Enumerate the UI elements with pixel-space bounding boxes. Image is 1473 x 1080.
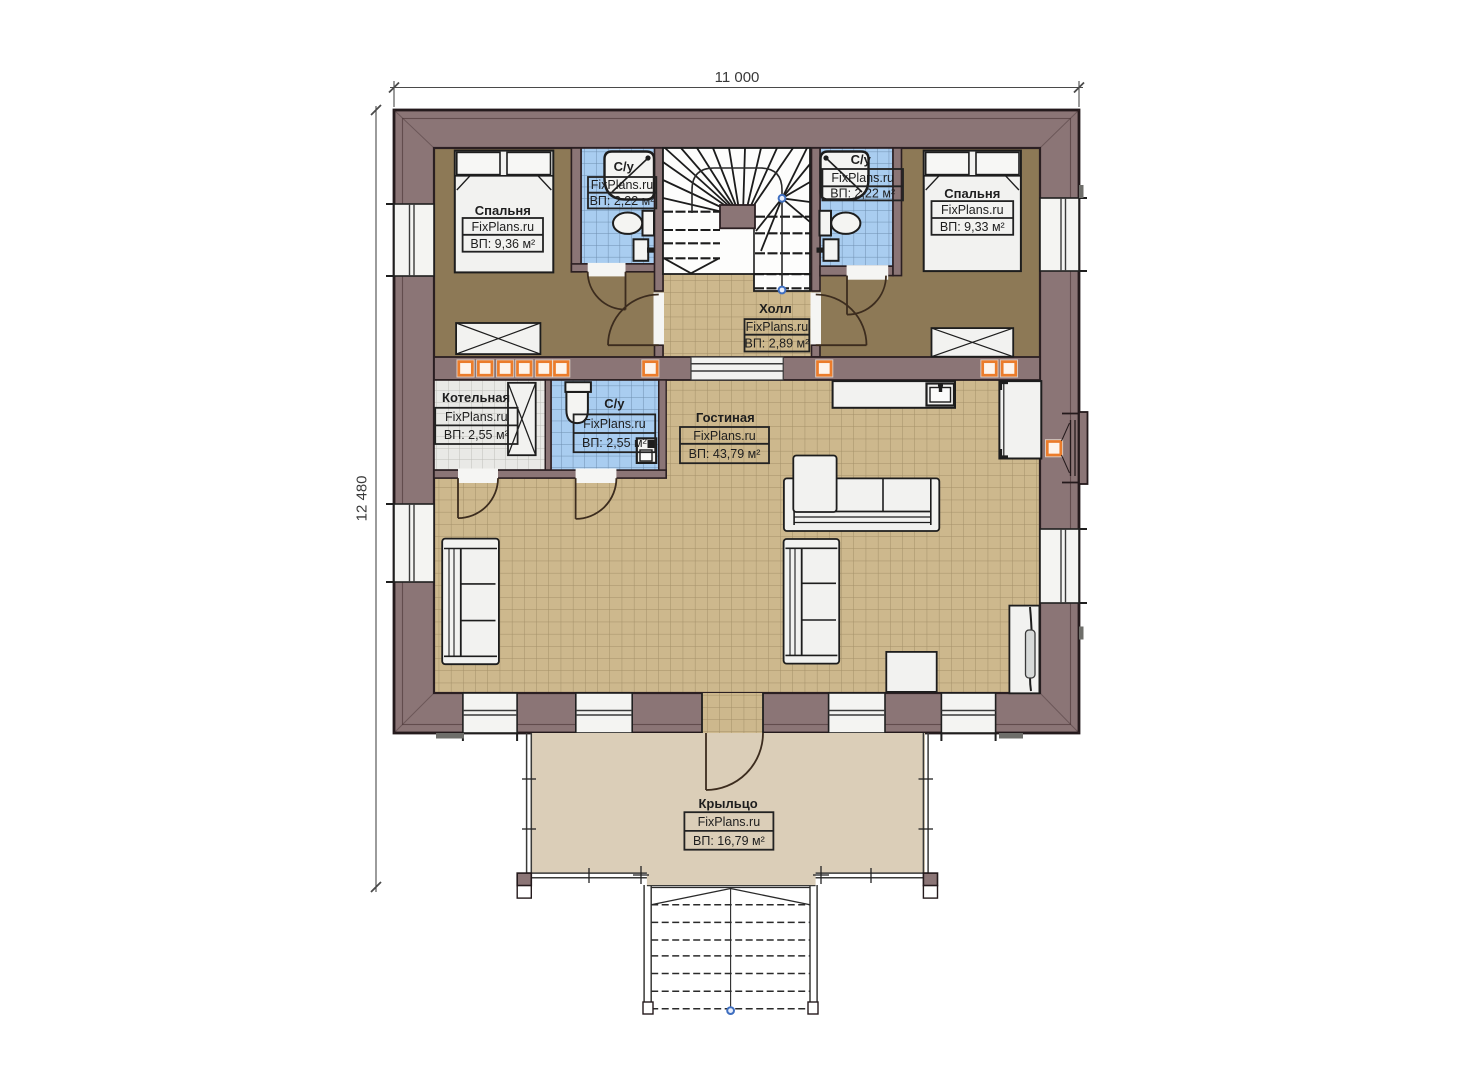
svg-text:ВП: 2,89 м²: ВП: 2,89 м² (744, 337, 809, 351)
svg-text:FixPlans.ru: FixPlans.ru (941, 203, 1004, 217)
svg-text:11 000: 11 000 (715, 69, 760, 86)
svg-text:Котельная: Котельная (442, 390, 510, 405)
svg-text:ВП: 2,22 м²: ВП: 2,22 м² (830, 187, 895, 201)
svg-text:FixPlans.ru: FixPlans.ru (698, 815, 761, 829)
svg-text:Холл: Холл (759, 301, 792, 316)
svg-text:FixPlans.ru: FixPlans.ru (591, 178, 654, 192)
svg-text:Спальня: Спальня (475, 203, 531, 218)
svg-text:FixPlans.ru: FixPlans.ru (693, 429, 756, 443)
svg-text:ВП: 2,55 м²: ВП: 2,55 м² (582, 436, 647, 450)
svg-text:FixPlans.ru: FixPlans.ru (472, 220, 535, 234)
svg-text:Спальня: Спальня (944, 186, 1000, 201)
svg-text:ВП: 9,36 м²: ВП: 9,36 м² (470, 237, 535, 251)
svg-text:ВП: 2,55 м²: ВП: 2,55 м² (444, 428, 509, 442)
svg-text:Крыльцо: Крыльцо (699, 796, 758, 811)
svg-text:С/у: С/у (604, 396, 625, 411)
svg-text:FixPlans.ru: FixPlans.ru (583, 417, 646, 431)
svg-text:FixPlans.ru: FixPlans.ru (746, 320, 809, 334)
svg-text:ВП: 2,22 м²: ВП: 2,22 м² (590, 194, 655, 208)
svg-text:С/у: С/у (614, 159, 635, 174)
svg-text:ВП: 9,33 м²: ВП: 9,33 м² (940, 220, 1005, 234)
svg-text:Гостиная: Гостиная (696, 410, 755, 425)
svg-text:С/у: С/у (851, 152, 872, 167)
svg-text:12 480: 12 480 (354, 475, 371, 521)
svg-text:ВП: 43,79 м²: ВП: 43,79 м² (689, 447, 761, 461)
svg-text:FixPlans.ru: FixPlans.ru (831, 171, 894, 185)
svg-text:ВП: 16,79 м²: ВП: 16,79 м² (693, 834, 765, 848)
svg-text:FixPlans.ru: FixPlans.ru (445, 410, 508, 424)
